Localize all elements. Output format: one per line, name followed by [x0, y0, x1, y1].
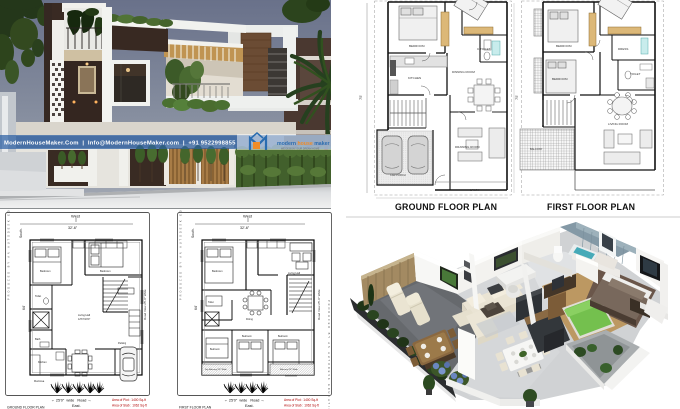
svg-text:BALCONY: BALCONY	[530, 147, 543, 151]
svg-text:Living Hall: Living Hall	[288, 271, 300, 275]
svg-text:Bedroom: Bedroom	[210, 348, 220, 351]
svg-text:GROUND FLOOR PLAN: GROUND FLOOR PLAN	[395, 202, 497, 212]
svg-text:FIRST FLOOR PLAN: FIRST FLOOR PLAN	[179, 406, 212, 409]
svg-text:CAR PORCH: CAR PORCH	[390, 173, 406, 177]
svg-text:64': 64'	[22, 305, 26, 310]
svg-text:Bedroom: Bedroom	[242, 335, 252, 338]
svg-text:Living Hall: Living Hall	[78, 313, 90, 317]
svg-text:Area of Plot : 1400 Sq-ft: Area of Plot : 1400 Sq-ft	[112, 398, 146, 402]
svg-text:75': 75'	[358, 95, 363, 100]
svg-text:LAWN: LAWN	[470, 188, 479, 192]
svg-text:Area of Slab : 1062 Sq-ft: Area of Slab : 1062 Sq-ft	[284, 404, 319, 408]
svg-text:East.: East.	[72, 404, 81, 408]
svg-text:Bedroom: Bedroom	[100, 269, 111, 273]
svg-text:South.: South.	[19, 228, 23, 238]
svg-text:FIRST FLOOR PLAN: FIRST FLOOR PLAN	[547, 202, 635, 212]
svg-text:64': 64'	[194, 305, 198, 310]
svg-text:South.: South.	[191, 228, 195, 238]
svg-text:Area of Slab : 1062 Sq-ft: Area of Slab : 1062 Sq-ft	[112, 404, 147, 408]
svg-text:Kitchen: Kitchen	[38, 360, 47, 364]
svg-text:Road View 25'-0" Wide: Road View 25'-0" Wide	[143, 289, 147, 320]
svg-text:← 25'0" wide Road →: ← 25'0" wide Road →	[51, 399, 91, 403]
svg-text:Bedroom: Bedroom	[278, 335, 288, 338]
svg-text:← 25'0" wide Road →: ← 25'0" wide Road →	[224, 399, 264, 403]
svg-text:DINNING ROOM: DINNING ROOM	[452, 70, 475, 74]
svg-text:GROUND FLOOR PLAN: GROUND FLOOR PLAN	[7, 406, 45, 409]
svg-text:BEDROOM: BEDROOM	[556, 44, 572, 48]
svg-text:WE DESIGN YOUR DREAM HOME: WE DESIGN YOUR DREAM HOME	[281, 148, 320, 151]
svg-text:East.: East.	[245, 404, 254, 408]
svg-text:12'6"X19'0": 12'6"X19'0"	[78, 318, 90, 321]
svg-text:Toilet: Toilet	[35, 294, 41, 298]
svg-text:Mud Area: Mud Area	[34, 380, 45, 383]
svg-text:Bedroom: Bedroom	[40, 269, 51, 273]
svg-text:West: West	[71, 214, 81, 219]
svg-text:Dry Balcony 3'0" Wide: Dry Balcony 3'0" Wide	[205, 368, 227, 371]
svg-text:Bath: Bath	[35, 337, 41, 341]
svg-text:BEDROOM: BEDROOM	[552, 77, 568, 81]
svg-text:32'-6": 32'-6"	[68, 226, 78, 230]
svg-text:TOILET: TOILET	[630, 72, 641, 76]
svg-text:LIVING ROOM: LIVING ROOM	[608, 122, 629, 126]
svg-text:Dining: Dining	[246, 318, 253, 321]
svg-text:DRESS: DRESS	[618, 47, 628, 51]
svg-text:modern house maker: modern house maker	[277, 141, 329, 147]
svg-text:DRAWING ROOM: DRAWING ROOM	[455, 145, 480, 149]
svg-text:Bedroom: Bedroom	[212, 269, 223, 273]
svg-text:West: West	[243, 214, 253, 219]
svg-text:Road View 25'-0" Wide: Road View 25'-0" Wide	[317, 289, 321, 320]
svg-text:Balcony 3'0" Wide: Balcony 3'0" Wide	[280, 369, 298, 371]
svg-text:Area of Plot : 1400 Sq-ft: Area of Plot : 1400 Sq-ft	[284, 398, 318, 402]
svg-text:Parking: Parking	[118, 342, 127, 345]
svg-text:BEDROOM: BEDROOM	[409, 44, 425, 48]
svg-text:KITCHEN: KITCHEN	[408, 76, 421, 80]
svg-text:C.TOILET: C.TOILET	[477, 47, 491, 51]
svg-text:32'-6": 32'-6"	[240, 226, 250, 230]
svg-text:75': 75'	[514, 95, 519, 100]
svg-text:ModernHouseMaker.Com | Info@: ModernHouseMaker.Com | Info@ModernHouseM…	[4, 141, 236, 147]
svg-text:Toilet: Toilet	[208, 301, 214, 304]
